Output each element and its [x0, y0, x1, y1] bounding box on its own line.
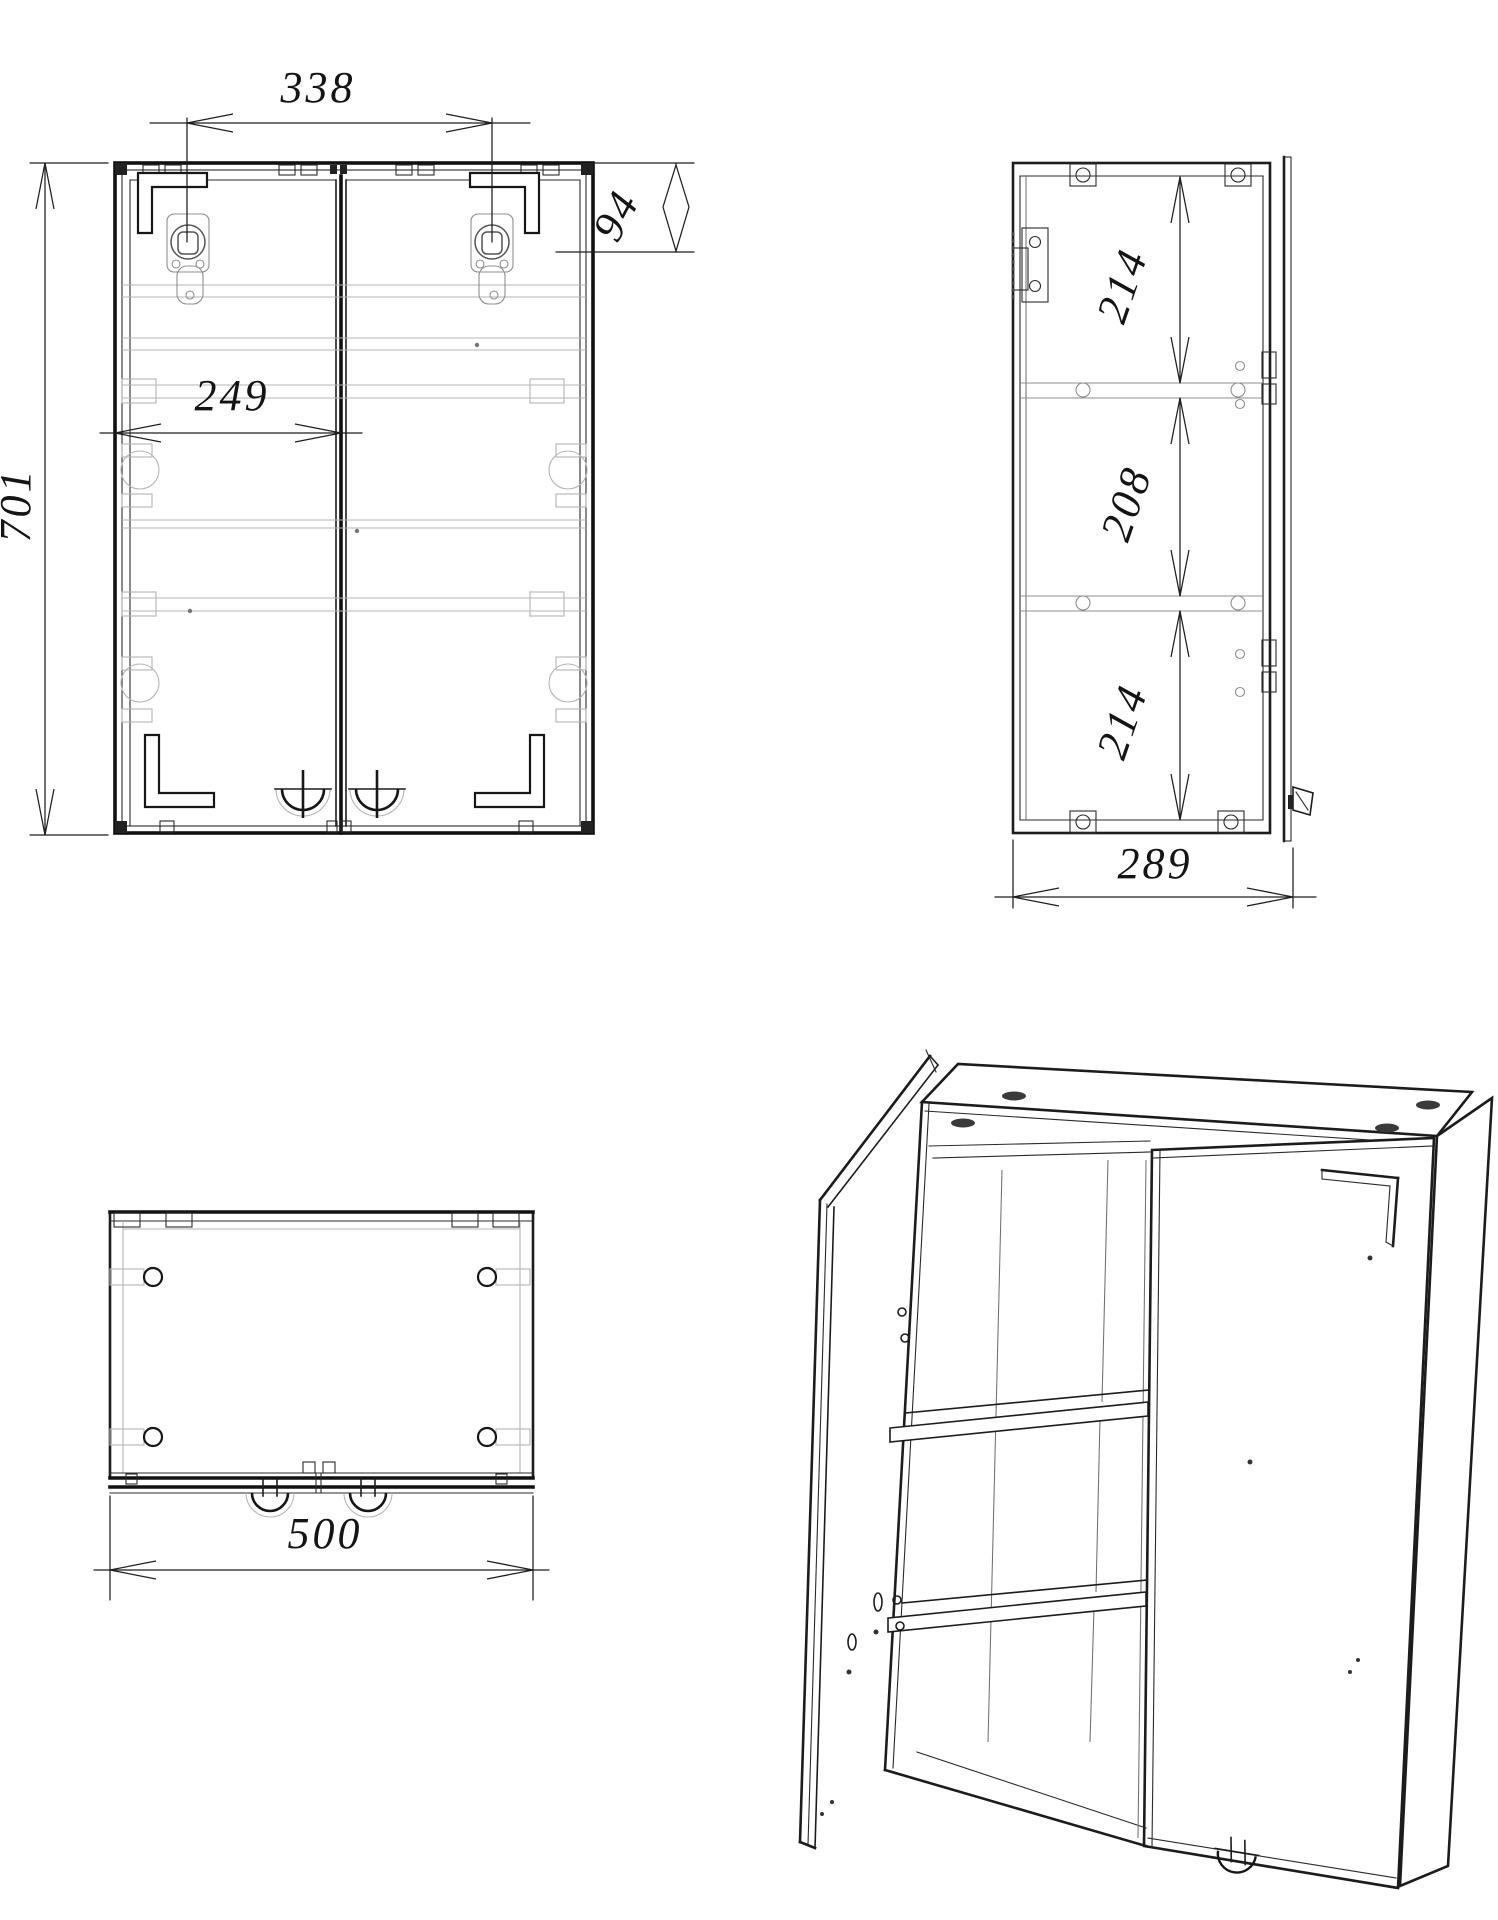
side-view — [1013, 157, 1313, 841]
iso-hinge-screws — [874, 1308, 910, 1635]
front-carcass-inner — [122, 170, 586, 826]
dim-door-width: 249 — [100, 371, 362, 442]
dim-overall-width: 500 — [94, 1496, 549, 1600]
door-latch — [1288, 787, 1313, 815]
dim-overall-height-label: 701 — [0, 468, 40, 543]
iso-shelves — [888, 1390, 1149, 1632]
hanging-bracket — [1013, 228, 1048, 302]
dim-hinge-spacing-label: 338 — [280, 63, 356, 112]
front-doors — [130, 176, 580, 833]
side-door-edge — [1284, 157, 1291, 841]
front-ghost-lines — [121, 285, 587, 722]
technical-drawing-canvas: 338 94 701 249 — [0, 0, 1498, 1920]
dim-compartment-bottom-label: 214 — [1087, 678, 1158, 765]
screw-pins — [110, 1268, 530, 1446]
bottom-door-edge — [110, 1462, 533, 1493]
isometric-view — [800, 1050, 1492, 1888]
dim-compartment-middle-label: 208 — [1091, 460, 1162, 547]
front-view — [115, 163, 593, 833]
dim-overall-height: 701 — [0, 163, 108, 835]
dim-compartment-top-label: 214 — [1087, 242, 1158, 329]
drawing-sheet: 338 94 701 249 — [0, 0, 1498, 1920]
front-handle-right — [349, 770, 405, 818]
front-carcass-outline — [115, 163, 593, 833]
bottom-view — [110, 1212, 533, 1517]
iso-right-door — [1144, 1138, 1434, 1888]
dim-depth-label: 289 — [1118, 839, 1193, 888]
front-handle-left — [275, 770, 331, 818]
dim-depth: 289 — [995, 839, 1316, 908]
dim-top-rail: 94 — [556, 163, 694, 252]
hinge-plate-left — [167, 214, 209, 304]
dim-compartments: 214 208 214 — [1087, 177, 1189, 820]
dim-door-width-label: 249 — [195, 371, 270, 420]
bottom-outline — [110, 1212, 533, 1478]
dim-overall-width-label: 500 — [288, 1509, 363, 1558]
